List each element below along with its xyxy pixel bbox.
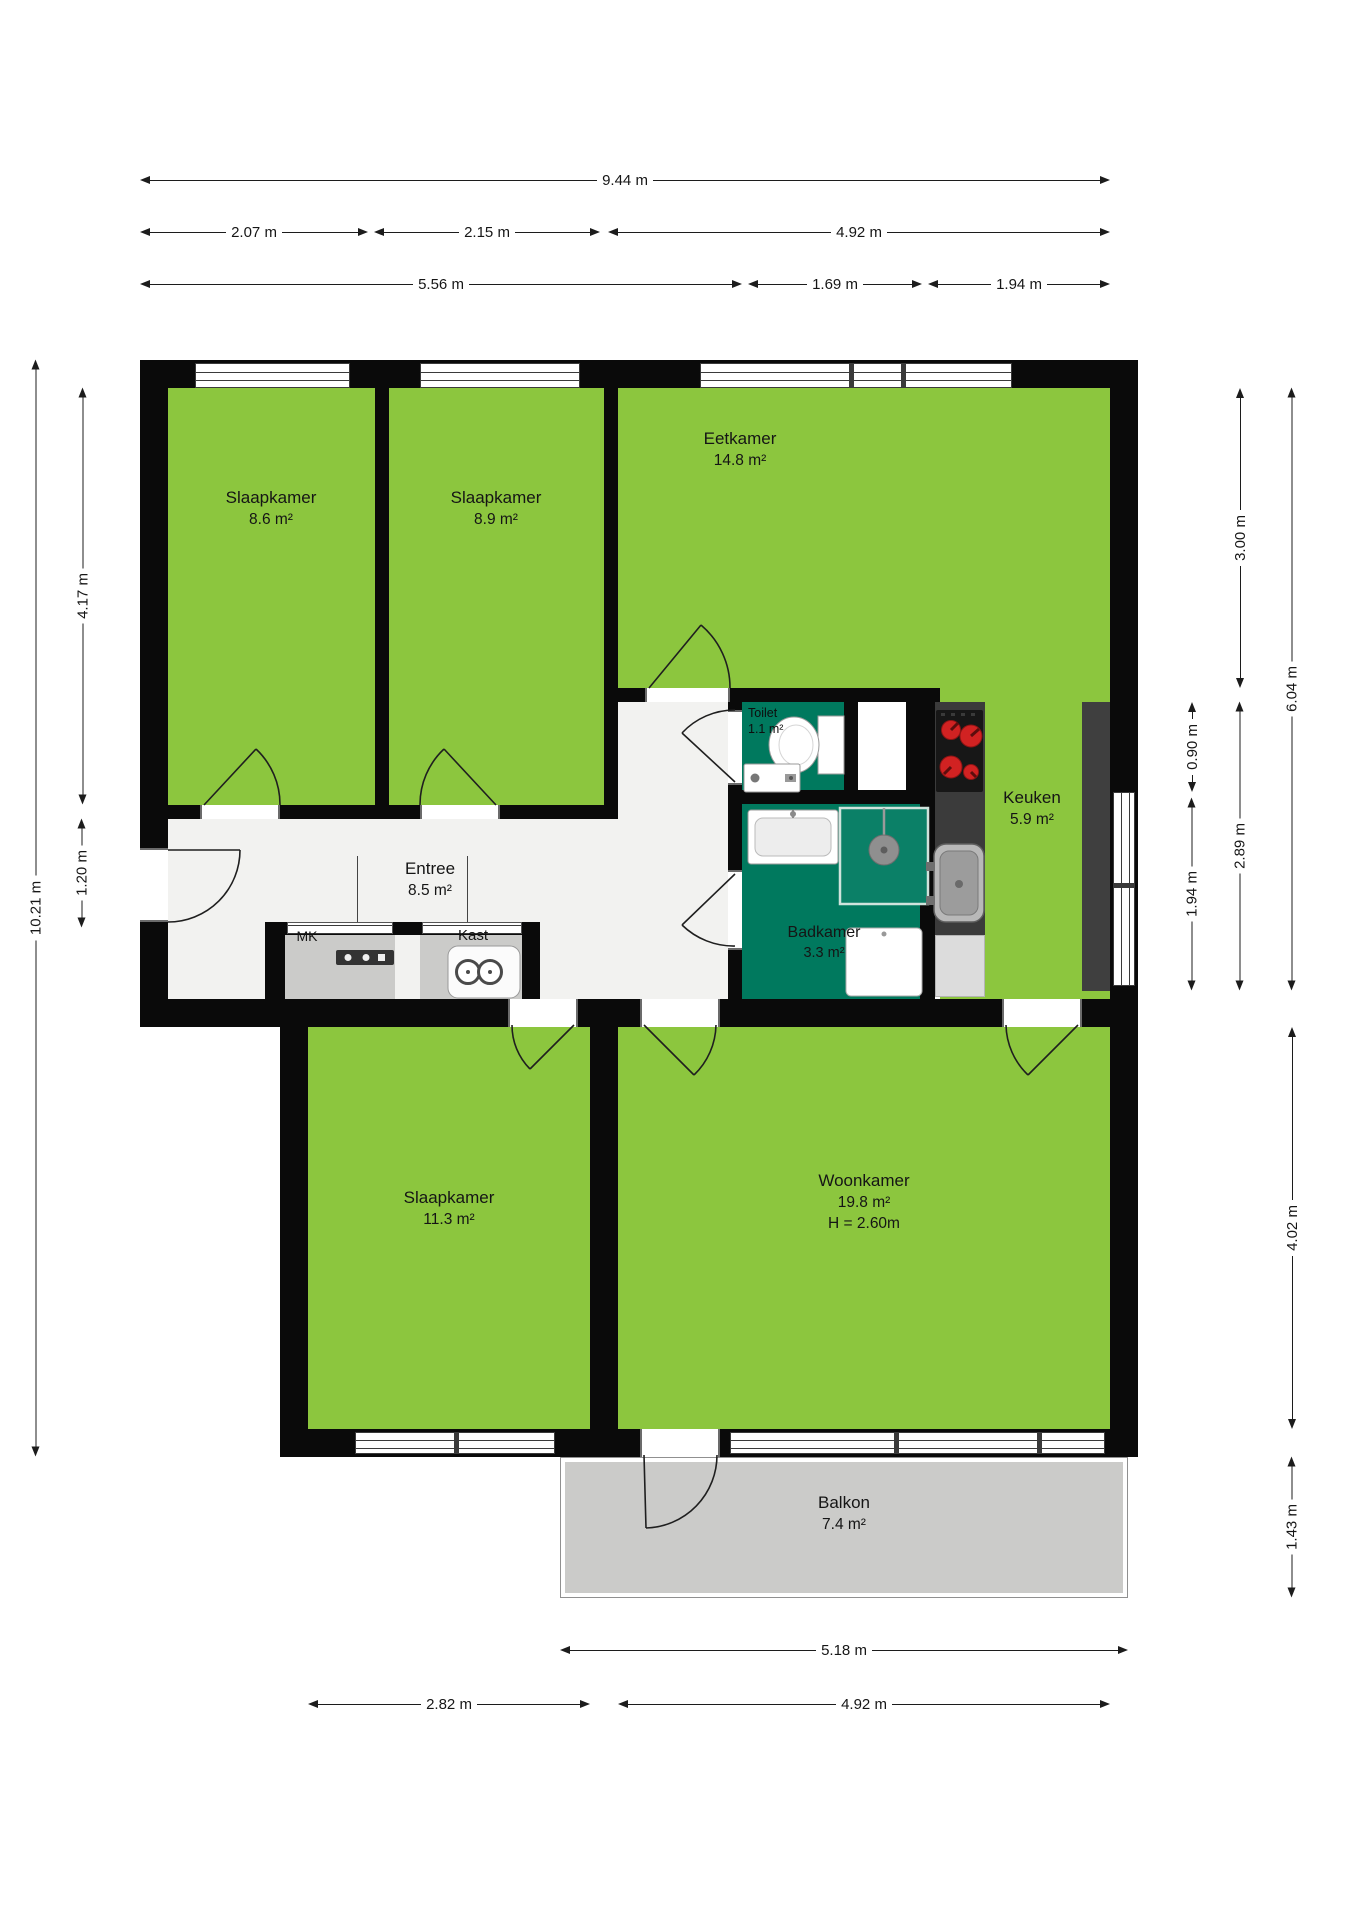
dimension: 0.90 m	[1184, 702, 1200, 792]
door-arc	[204, 749, 280, 805]
dimension: 4.02 m	[1284, 1027, 1300, 1429]
room-label-eetkamer: Eetkamer14.8 m²	[704, 428, 777, 472]
room-label-slaapkamer-2: Slaapkamer8.9 m²	[451, 487, 542, 531]
dimension: 2.82 m	[308, 1696, 590, 1712]
dimension: 2.15 m	[374, 224, 600, 240]
dimension: 2.07 m	[140, 224, 368, 240]
room-label-badkamer: Badkamer3.3 m²	[788, 922, 861, 963]
dimension: 4.92 m	[618, 1696, 1110, 1712]
dimension: 5.18 m	[560, 1642, 1128, 1658]
room-label-slaapkamer-3: Slaapkamer11.3 m²	[404, 1187, 495, 1231]
dimension: 5.56 m	[140, 276, 742, 292]
door-arc	[644, 1455, 717, 1528]
door-arc	[420, 749, 496, 805]
dimension: 1.20 m	[74, 819, 90, 928]
door-arc	[682, 874, 735, 946]
dimension: 1.94 m	[928, 276, 1110, 292]
meter-unit	[336, 950, 394, 965]
water-heater	[448, 946, 520, 998]
dimension: 4.17 m	[75, 388, 91, 805]
dimension: 3.00 m	[1232, 388, 1248, 688]
dimension: 4.92 m	[608, 224, 1110, 240]
door-arc	[1006, 1025, 1078, 1075]
room-label-woonkamer: Woonkamer19.8 m²H = 2.60m	[818, 1170, 909, 1235]
shower	[840, 808, 928, 904]
dimension-top-total: 9.44 m	[140, 172, 1110, 188]
dimension: 1.94 m	[1184, 798, 1200, 991]
room-label-entree: Entree8.5 m²	[405, 858, 455, 902]
room-label-keuken: Keuken5.9 m²	[1003, 787, 1061, 831]
door-arc	[649, 625, 730, 688]
dimension: 1.43 m	[1284, 1457, 1300, 1598]
floor-plan: Slaapkamer8.6 m² Slaapkamer8.9 m² Eetkam…	[0, 0, 1358, 1920]
door-arc	[682, 710, 735, 782]
stove	[936, 710, 983, 792]
dimension: 1.69 m	[748, 276, 922, 292]
bathroom-sink	[748, 810, 838, 864]
dimension-right-total: 6.04 m	[1284, 388, 1300, 991]
room-label-balkon: Balkon7.4 m²	[818, 1492, 870, 1536]
room-label-toilet: Toilet1.1 m²	[748, 706, 783, 737]
room-label-mk: MK	[297, 927, 318, 946]
door-arc	[644, 1025, 716, 1075]
dimension-left-total: 10.21 m	[28, 360, 44, 1457]
door-arc	[512, 1025, 574, 1069]
dimension: 2.89 m	[1232, 702, 1248, 991]
room-label-slaapkamer-1: Slaapkamer8.6 m²	[226, 487, 317, 531]
room-label-kast: Kast	[458, 926, 488, 946]
kitchen-sink	[926, 844, 984, 922]
door-arc	[168, 850, 240, 922]
toilet-sink	[744, 764, 800, 792]
